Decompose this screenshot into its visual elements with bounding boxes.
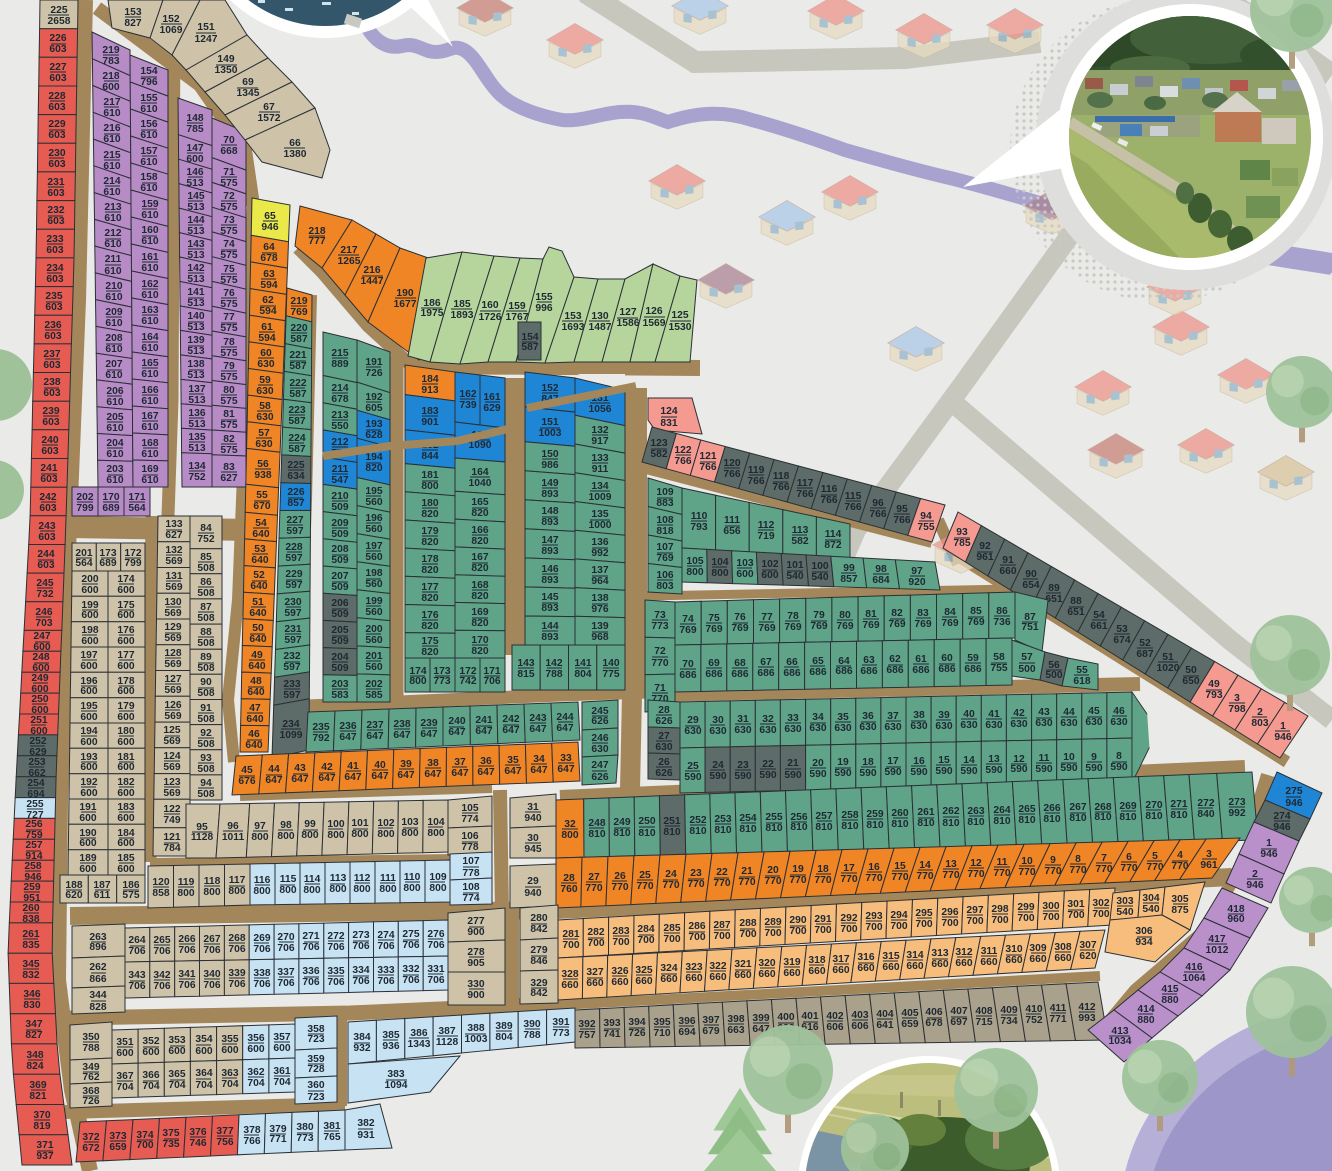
svg-text:191: 191: [79, 802, 96, 813]
svg-text:770: 770: [891, 872, 908, 883]
svg-text:240: 240: [41, 435, 58, 446]
svg-text:251: 251: [30, 715, 47, 726]
svg-text:771: 771: [269, 1134, 286, 1145]
svg-text:513: 513: [188, 419, 205, 430]
svg-text:672: 672: [82, 1143, 99, 1154]
svg-text:296: 296: [941, 907, 958, 918]
svg-text:318: 318: [808, 955, 825, 966]
svg-text:857: 857: [287, 498, 304, 509]
svg-text:1094: 1094: [385, 1080, 408, 1091]
svg-text:169: 169: [141, 464, 158, 475]
svg-text:161: 161: [141, 252, 158, 263]
svg-text:700: 700: [1092, 909, 1109, 920]
svg-text:500: 500: [1018, 664, 1035, 675]
svg-text:835: 835: [22, 940, 39, 951]
svg-text:703: 703: [35, 618, 52, 629]
svg-text:627: 627: [165, 530, 182, 541]
svg-text:706: 706: [377, 941, 394, 952]
svg-text:880: 880: [1161, 995, 1178, 1006]
svg-text:272: 272: [1197, 798, 1214, 809]
svg-text:800: 800: [279, 885, 296, 896]
svg-text:600: 600: [81, 636, 98, 647]
svg-text:820: 820: [471, 536, 488, 547]
svg-text:102: 102: [761, 559, 778, 570]
svg-text:640: 640: [252, 529, 269, 540]
svg-text:810: 810: [967, 817, 984, 828]
svg-text:706: 706: [228, 944, 245, 955]
svg-text:893: 893: [541, 546, 558, 557]
svg-text:810: 810: [917, 818, 934, 829]
svg-text:91: 91: [1002, 555, 1014, 566]
svg-text:686: 686: [938, 664, 955, 675]
svg-text:68: 68: [734, 658, 746, 669]
svg-text:81: 81: [223, 409, 235, 420]
svg-text:600: 600: [117, 712, 134, 723]
svg-text:162: 162: [459, 389, 476, 400]
svg-text:231: 231: [284, 624, 301, 635]
svg-text:597: 597: [284, 608, 301, 619]
svg-text:245: 245: [36, 578, 53, 589]
svg-text:143: 143: [517, 658, 534, 669]
svg-text:630: 630: [256, 386, 273, 397]
svg-text:348: 348: [26, 1050, 43, 1061]
svg-text:145: 145: [187, 191, 204, 202]
svg-text:600: 600: [221, 1045, 238, 1056]
svg-text:313: 313: [931, 948, 948, 959]
svg-text:53: 53: [1116, 624, 1128, 635]
svg-text:215: 215: [331, 348, 348, 359]
svg-text:706: 706: [178, 980, 195, 991]
svg-text:301: 301: [1067, 899, 1084, 910]
svg-text:569: 569: [164, 685, 181, 696]
svg-text:640: 640: [248, 661, 265, 672]
svg-text:17: 17: [887, 756, 899, 767]
svg-text:746: 746: [189, 1138, 206, 1149]
svg-text:686: 686: [679, 670, 696, 681]
svg-text:35: 35: [837, 712, 849, 723]
svg-text:10: 10: [1021, 856, 1033, 867]
svg-text:590: 590: [834, 768, 851, 779]
svg-text:678: 678: [331, 394, 348, 405]
svg-text:396: 396: [678, 1016, 695, 1027]
svg-text:700: 700: [814, 925, 831, 936]
svg-text:89: 89: [1048, 583, 1060, 594]
svg-text:647: 647: [339, 732, 356, 743]
svg-text:630: 630: [1085, 717, 1102, 728]
svg-text:594: 594: [259, 306, 276, 317]
svg-text:251: 251: [663, 816, 680, 827]
svg-text:603: 603: [48, 102, 65, 113]
svg-text:686: 686: [886, 665, 903, 676]
svg-text:149: 149: [217, 54, 234, 65]
svg-text:148: 148: [541, 506, 558, 517]
svg-text:131: 131: [165, 571, 182, 582]
svg-text:946: 946: [1274, 732, 1291, 743]
svg-text:28: 28: [563, 873, 575, 884]
svg-text:858: 858: [152, 888, 169, 899]
svg-text:728: 728: [307, 1064, 324, 1075]
svg-text:312: 312: [955, 947, 972, 958]
svg-text:92: 92: [200, 728, 212, 739]
svg-text:101: 101: [351, 818, 368, 829]
svg-text:136: 136: [188, 408, 205, 419]
svg-text:900: 900: [467, 990, 484, 1001]
svg-text:277: 277: [467, 916, 484, 927]
svg-text:336: 336: [302, 966, 319, 977]
svg-text:77: 77: [761, 612, 773, 623]
svg-text:377: 377: [216, 1126, 233, 1137]
svg-text:620: 620: [1079, 951, 1096, 962]
svg-text:284: 284: [637, 924, 654, 935]
svg-text:167: 167: [471, 552, 488, 563]
svg-text:216: 216: [363, 265, 380, 276]
svg-text:339: 339: [228, 968, 245, 979]
svg-text:45: 45: [1088, 706, 1100, 717]
svg-text:117: 117: [797, 478, 814, 489]
svg-text:2: 2: [1257, 707, 1263, 718]
svg-text:164: 164: [471, 467, 488, 478]
svg-text:723: 723: [307, 1034, 324, 1045]
svg-text:18: 18: [817, 864, 829, 875]
svg-text:508: 508: [197, 739, 214, 750]
svg-text:128: 128: [164, 648, 181, 659]
svg-text:678: 678: [260, 253, 277, 264]
svg-text:241: 241: [475, 715, 492, 726]
svg-text:50: 50: [252, 623, 264, 634]
svg-text:946: 946: [1260, 849, 1277, 860]
svg-text:337: 337: [277, 967, 294, 978]
svg-text:23: 23: [690, 868, 702, 879]
svg-text:800: 800: [686, 567, 703, 578]
svg-text:883: 883: [656, 498, 673, 509]
svg-text:509: 509: [331, 636, 348, 647]
svg-text:382: 382: [357, 1118, 374, 1129]
svg-text:110: 110: [691, 511, 708, 522]
svg-text:204: 204: [331, 652, 348, 663]
svg-text:78: 78: [787, 611, 799, 622]
svg-text:138: 138: [187, 359, 204, 370]
svg-text:1012: 1012: [1206, 945, 1229, 956]
svg-text:800: 800: [253, 886, 270, 897]
svg-text:509: 509: [331, 555, 348, 566]
svg-text:401: 401: [801, 1011, 818, 1022]
svg-text:310: 310: [1005, 944, 1022, 955]
svg-text:600: 600: [273, 1043, 290, 1054]
svg-text:770: 770: [636, 881, 653, 892]
svg-text:630: 630: [884, 722, 901, 733]
svg-text:828: 828: [89, 1002, 106, 1013]
svg-text:123: 123: [163, 777, 180, 788]
svg-text:600: 600: [116, 1048, 133, 1059]
svg-text:590: 590: [884, 767, 901, 778]
svg-text:600: 600: [117, 838, 134, 849]
svg-text:75: 75: [223, 264, 235, 275]
svg-text:650: 650: [1182, 676, 1199, 687]
svg-text:228: 228: [285, 542, 302, 553]
svg-text:706: 706: [483, 676, 500, 687]
svg-text:810: 810: [993, 816, 1010, 827]
svg-text:281: 281: [562, 929, 579, 940]
svg-text:704: 704: [221, 1079, 238, 1090]
svg-text:6: 6: [1126, 852, 1132, 863]
svg-text:185: 185: [453, 299, 470, 310]
svg-text:590: 590: [859, 768, 876, 779]
svg-text:233: 233: [283, 679, 300, 690]
svg-text:600: 600: [80, 737, 97, 748]
svg-text:945: 945: [524, 844, 541, 855]
svg-text:1265: 1265: [338, 256, 361, 267]
svg-text:250: 250: [638, 816, 655, 827]
svg-text:630: 630: [255, 439, 272, 450]
svg-text:610: 610: [141, 210, 158, 221]
svg-text:207: 207: [331, 571, 348, 582]
svg-text:73: 73: [654, 610, 666, 621]
svg-text:800: 800: [303, 885, 320, 896]
svg-text:149: 149: [541, 478, 558, 489]
svg-text:660: 660: [1005, 955, 1022, 966]
svg-text:197: 197: [365, 541, 382, 552]
svg-text:1380: 1380: [284, 149, 307, 160]
svg-text:630: 630: [859, 722, 876, 733]
svg-text:286: 286: [688, 921, 705, 932]
svg-text:82: 82: [223, 434, 235, 445]
svg-text:125: 125: [163, 725, 180, 736]
svg-text:686: 686: [912, 665, 929, 676]
svg-text:1128: 1128: [436, 1037, 459, 1048]
svg-text:610: 610: [105, 318, 122, 329]
svg-text:25: 25: [687, 761, 699, 772]
svg-text:741: 741: [603, 1029, 620, 1040]
svg-text:770: 770: [865, 873, 882, 884]
svg-text:152: 152: [162, 14, 179, 25]
svg-text:214: 214: [331, 383, 348, 394]
svg-text:960: 960: [1227, 914, 1244, 925]
svg-text:647: 647: [344, 772, 361, 783]
svg-text:804: 804: [574, 669, 591, 680]
svg-text:606: 606: [851, 1021, 868, 1032]
svg-text:263: 263: [967, 806, 984, 817]
svg-text:694: 694: [678, 1027, 695, 1038]
svg-text:603: 603: [43, 388, 60, 399]
svg-text:271: 271: [1170, 799, 1187, 810]
svg-text:326: 326: [611, 966, 628, 977]
svg-text:169: 169: [471, 607, 488, 618]
svg-text:274: 274: [1273, 811, 1290, 822]
svg-text:371: 371: [36, 1140, 53, 1151]
svg-text:769: 769: [941, 618, 958, 629]
svg-text:404: 404: [876, 1009, 893, 1020]
svg-text:210: 210: [331, 491, 348, 502]
svg-text:640: 640: [246, 714, 263, 725]
svg-text:51: 51: [1162, 652, 1174, 663]
svg-text:65: 65: [264, 211, 276, 222]
svg-text:242: 242: [39, 492, 56, 503]
svg-text:183: 183: [117, 802, 134, 813]
svg-text:600: 600: [80, 661, 97, 672]
svg-text:103: 103: [736, 558, 753, 569]
svg-text:820: 820: [471, 646, 488, 657]
svg-text:905: 905: [467, 958, 484, 969]
svg-text:773: 773: [433, 676, 450, 687]
svg-text:618: 618: [1073, 676, 1090, 687]
svg-text:647: 647: [502, 725, 519, 736]
svg-text:700: 700: [587, 938, 604, 949]
svg-text:590: 590: [759, 770, 776, 781]
svg-text:660: 660: [857, 963, 874, 974]
svg-text:357: 357: [273, 1032, 290, 1043]
svg-text:72: 72: [223, 191, 235, 202]
svg-text:220: 220: [290, 323, 307, 334]
svg-text:500: 500: [1045, 670, 1062, 681]
svg-text:603: 603: [47, 216, 64, 227]
svg-text:626: 626: [655, 768, 672, 779]
svg-text:569: 569: [164, 659, 181, 670]
svg-text:66: 66: [786, 657, 798, 668]
svg-text:564: 564: [128, 503, 145, 514]
svg-text:10: 10: [1063, 752, 1075, 763]
svg-text:700: 700: [941, 918, 958, 929]
svg-text:137: 137: [591, 565, 608, 576]
svg-text:109: 109: [656, 487, 673, 498]
svg-text:889: 889: [331, 359, 348, 370]
svg-text:569: 569: [165, 582, 182, 593]
svg-text:57: 57: [1021, 652, 1033, 663]
svg-text:204: 204: [106, 438, 123, 449]
svg-text:630: 630: [256, 412, 273, 423]
svg-text:706: 706: [128, 981, 145, 992]
svg-text:647: 647: [371, 771, 388, 782]
svg-text:509: 509: [331, 502, 348, 513]
svg-text:315: 315: [882, 951, 899, 962]
svg-text:706: 706: [277, 978, 294, 989]
svg-text:587: 587: [288, 416, 305, 427]
svg-text:700: 700: [840, 924, 857, 935]
svg-text:785: 785: [953, 538, 970, 549]
svg-text:253: 253: [714, 814, 731, 825]
svg-text:810: 810: [663, 827, 680, 838]
svg-text:79: 79: [223, 361, 235, 372]
svg-text:610: 610: [106, 449, 123, 460]
svg-text:582: 582: [791, 536, 808, 547]
svg-text:1011: 1011: [222, 832, 245, 843]
svg-text:810: 810: [866, 820, 883, 831]
svg-text:771: 771: [1049, 1014, 1066, 1025]
svg-text:585: 585: [365, 690, 382, 701]
svg-text:123: 123: [650, 438, 667, 449]
svg-text:610: 610: [141, 396, 158, 407]
svg-text:1726: 1726: [479, 312, 502, 323]
svg-text:270: 270: [1145, 800, 1162, 811]
svg-text:115: 115: [280, 874, 297, 885]
svg-text:400: 400: [777, 1012, 794, 1023]
svg-text:258: 258: [841, 810, 858, 821]
svg-text:54: 54: [1093, 610, 1105, 621]
svg-text:203: 203: [106, 464, 123, 475]
svg-text:880: 880: [1137, 1015, 1154, 1026]
svg-text:347: 347: [25, 1019, 42, 1030]
svg-text:792: 792: [312, 733, 329, 744]
svg-text:742: 742: [459, 676, 476, 687]
svg-text:120: 120: [152, 877, 169, 888]
svg-text:30: 30: [527, 833, 539, 844]
svg-text:590: 590: [1035, 764, 1052, 775]
svg-text:253: 253: [28, 757, 45, 768]
svg-text:752: 752: [1025, 1015, 1042, 1026]
svg-text:36: 36: [862, 711, 874, 722]
svg-text:20: 20: [767, 865, 779, 876]
svg-text:2658: 2658: [48, 16, 71, 27]
svg-text:660: 660: [1054, 953, 1071, 964]
svg-text:133: 133: [165, 519, 182, 530]
svg-text:385: 385: [382, 1030, 399, 1041]
svg-text:407: 407: [950, 1006, 967, 1017]
svg-text:647: 647: [393, 730, 410, 741]
svg-text:147: 147: [541, 535, 558, 546]
svg-text:208: 208: [105, 333, 122, 344]
svg-text:508: 508: [197, 613, 214, 624]
svg-text:1693: 1693: [562, 322, 585, 333]
svg-text:560: 560: [365, 579, 382, 590]
svg-text:71: 71: [223, 167, 235, 178]
svg-text:212: 212: [104, 228, 121, 239]
svg-text:509: 509: [331, 582, 348, 593]
svg-text:770: 770: [1069, 865, 1086, 876]
svg-text:866: 866: [89, 974, 106, 985]
svg-text:32: 32: [762, 714, 774, 725]
svg-text:706: 706: [327, 977, 344, 988]
svg-text:1003: 1003: [539, 428, 562, 439]
svg-text:603: 603: [38, 532, 55, 543]
svg-text:630: 630: [960, 720, 977, 731]
svg-text:600: 600: [117, 864, 134, 875]
svg-text:5: 5: [1152, 851, 1158, 862]
svg-text:640: 640: [249, 634, 266, 645]
svg-text:788: 788: [523, 1030, 540, 1041]
svg-text:611: 611: [94, 890, 111, 901]
svg-text:229: 229: [285, 569, 302, 580]
svg-text:58: 58: [993, 652, 1005, 663]
svg-text:800: 800: [401, 828, 418, 839]
svg-text:252: 252: [689, 815, 706, 826]
svg-text:340: 340: [203, 969, 220, 980]
svg-text:261: 261: [22, 929, 39, 940]
svg-text:341: 341: [178, 969, 195, 980]
svg-text:139: 139: [187, 335, 204, 346]
svg-text:600: 600: [79, 864, 96, 875]
svg-text:69: 69: [708, 658, 720, 669]
svg-text:769: 769: [836, 621, 853, 632]
svg-text:13: 13: [988, 754, 1000, 765]
svg-text:252: 252: [29, 736, 46, 747]
svg-text:94: 94: [920, 511, 932, 522]
svg-text:668: 668: [220, 146, 237, 157]
svg-text:73: 73: [223, 215, 235, 226]
svg-text:820: 820: [421, 621, 438, 632]
svg-text:647: 647: [318, 773, 335, 784]
svg-text:210: 210: [105, 281, 122, 292]
svg-text:540: 540: [1116, 907, 1133, 918]
svg-text:590: 590: [784, 770, 801, 781]
svg-text:513: 513: [187, 370, 204, 381]
svg-text:249: 249: [31, 673, 48, 684]
svg-text:810: 810: [891, 819, 908, 830]
svg-text:155: 155: [535, 292, 552, 303]
svg-text:774: 774: [462, 893, 479, 904]
svg-text:766: 766: [869, 509, 886, 520]
svg-text:372: 372: [82, 1132, 99, 1143]
svg-text:770: 770: [764, 876, 781, 887]
svg-text:569: 569: [164, 608, 181, 619]
